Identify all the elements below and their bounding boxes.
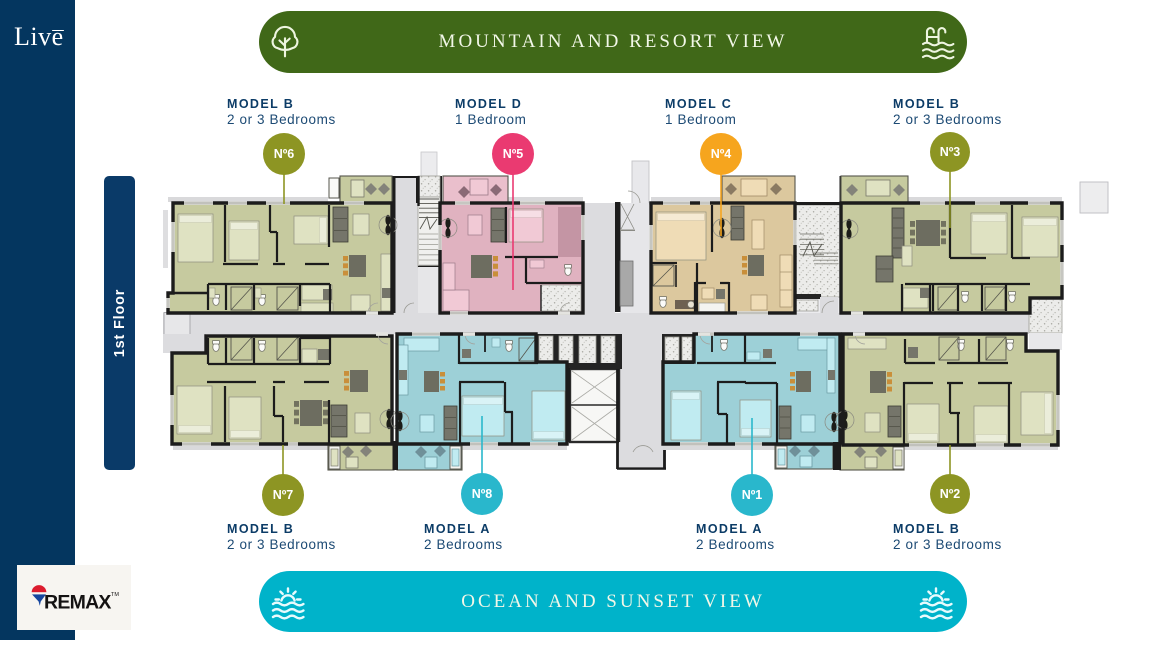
svg-text:TM: TM: [111, 592, 119, 598]
svg-text:REMAX: REMAX: [44, 592, 111, 614]
